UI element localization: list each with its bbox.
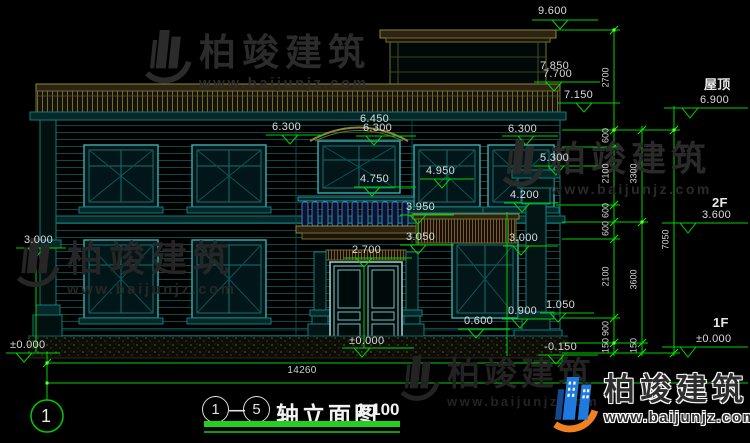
level-label-6900: 6.900 (700, 95, 729, 106)
level-label-6300-left: 6.300 (272, 122, 301, 133)
watermark-url: www.baijunjz.com (67, 281, 236, 298)
level-label-3050: 3.050 (406, 232, 435, 243)
balcony-balusters (302, 202, 408, 226)
level-label-0900: 0.900 (508, 306, 537, 317)
level-label-neg0150: -0.150 (544, 342, 577, 353)
level-label-0000-right: ±0.000 (696, 334, 731, 345)
drawing-scale: 1:100 (356, 400, 399, 420)
title-underline-thick (204, 421, 400, 427)
level-label-4950: 4.950 (426, 166, 455, 177)
level-label-6300-right: 6.300 (508, 124, 537, 135)
penthouse-roof (380, 30, 556, 89)
level-label-9600: 9.600 (538, 6, 567, 17)
dim-600-c: 600 (602, 207, 611, 251)
watermark-url: www.baijunjz.com (199, 75, 371, 92)
level-label-6300-center: 6.300 (363, 123, 392, 134)
dim-2100-b: 2100 (602, 255, 611, 299)
floor2-label: 2F (712, 196, 728, 209)
level-label-0000-door: ±0.000 (349, 336, 384, 347)
dim-2700: 2700 (602, 56, 611, 100)
title-underline-thin (204, 431, 400, 433)
dim-3300: 3300 (630, 152, 639, 196)
brand-logo-icon (552, 374, 598, 438)
brand-logo-name: 柏竣建筑 (604, 374, 750, 405)
floor1-label: 1F (713, 316, 729, 329)
roof-label: 屋顶 (704, 78, 731, 91)
level-label-3600: 3.600 (702, 210, 731, 221)
title-axis-start-circle: 1 (202, 396, 229, 423)
level-label-3950: 3.950 (406, 202, 435, 213)
title-axis-end: 5 (252, 401, 260, 418)
level-label-7150: 7.150 (564, 90, 593, 101)
level-label-4750: 4.750 (360, 174, 389, 185)
watermark-logo-icon (142, 24, 192, 86)
level-label-1050: 1.050 (546, 300, 575, 311)
watermark-logo-icon (398, 350, 440, 404)
level-label-0000-left: ±0.000 (10, 340, 45, 351)
watermark-brand: 柏竣建筑 (67, 241, 236, 278)
dim-total-width: 14260 (272, 366, 332, 376)
brand-logo-url: www.baijunjz.com (604, 409, 750, 426)
watermark-brand: 柏竣建筑 (199, 34, 371, 72)
dim-7050: 7050 (662, 218, 671, 262)
dim-150-b: 150 (630, 324, 639, 368)
cad-elevation-canvas: 柏竣建筑 www.baijunjz.com 柏竣建筑 www.baijunjz.… (0, 0, 750, 443)
watermark-top-left: 柏竣建筑 www.baijunjz.com (142, 24, 371, 92)
level-label-4200: 4.200 (510, 190, 539, 201)
level-label-5300: 5.300 (540, 153, 569, 164)
level-label-3000-right: 3.000 (509, 233, 538, 244)
balcony-rail (298, 197, 414, 201)
title-axis-end-circle: 5 (243, 396, 270, 423)
watermark-logo-icon (500, 134, 544, 190)
level-label-3000-left: 3.000 (24, 235, 53, 246)
level-label-7700: 7.700 (543, 69, 572, 80)
dim-3600: 3600 (630, 258, 639, 302)
level-label-2700: 2.700 (352, 245, 381, 256)
title-axis-start: 1 (211, 401, 219, 418)
level-label-0600: 0.600 (464, 316, 493, 327)
axis-number: 1 (41, 407, 51, 425)
brand-logo: 柏竣建筑 www.baijunjz.com (552, 374, 750, 438)
dim-150-a: 150 (602, 324, 611, 368)
